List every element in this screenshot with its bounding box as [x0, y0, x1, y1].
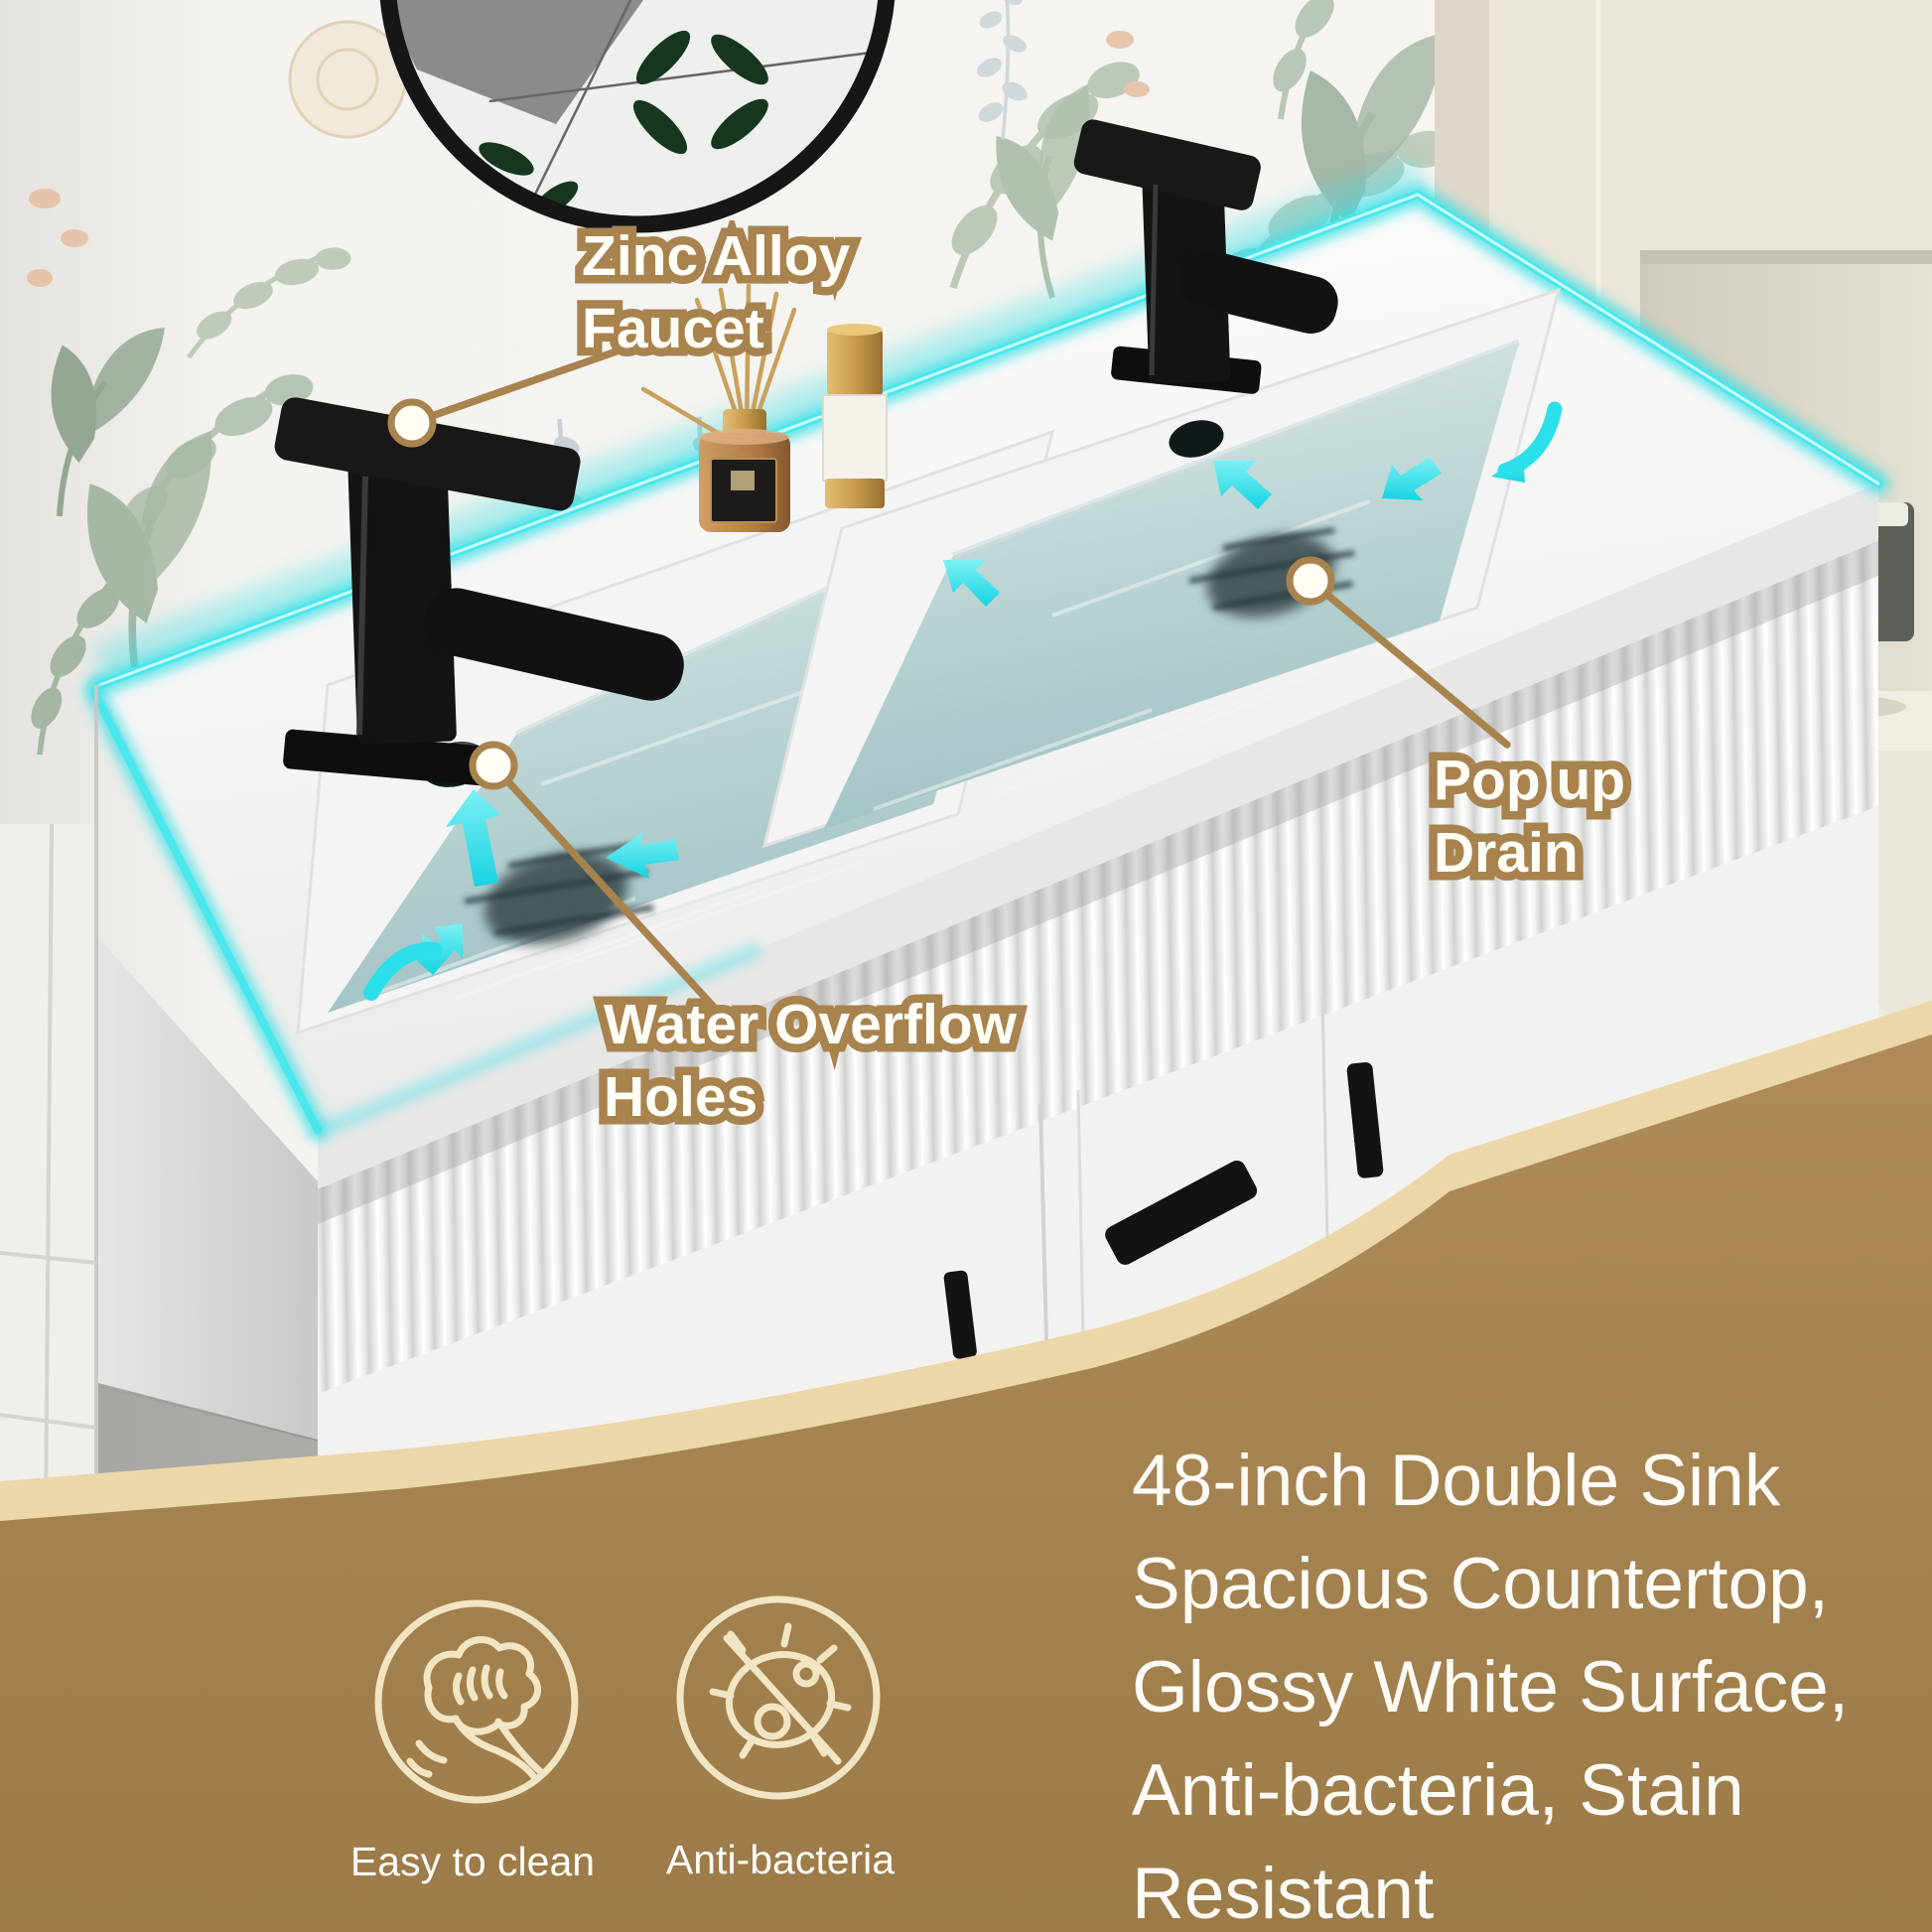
anti-bacteria-icon — [669, 1588, 888, 1807]
drain-callout-dot — [1290, 560, 1331, 602]
description-line: Resistant — [1132, 1843, 1926, 1932]
product-infographic: Zinc AlloyZinc Alloy FaucetFaucet Pop up… — [0, 0, 1932, 1932]
description-line: Glossy White Surface, — [1132, 1636, 1926, 1739]
callout-water-overflow-holes: Water OverflowWater Overflow HolesHoles — [604, 989, 1017, 1134]
description-line: Spacious Countertop, — [1132, 1533, 1926, 1636]
callout-text: Zinc Alloy — [582, 224, 850, 288]
description-line: Anti-bacteria, Stain — [1132, 1739, 1926, 1843]
faucet-callout-dot — [391, 402, 433, 444]
wipe-hand-icon — [367, 1592, 586, 1811]
callout-pop-up-drain: Pop upPop up DrainDrain — [1434, 745, 1625, 890]
bottle-label — [823, 395, 887, 481]
feature-label-anti-bacteria: Anti-bacteria — [621, 1837, 939, 1882]
feature-label-easy-to-clean: Easy to clean — [314, 1839, 631, 1884]
description-line: 48-inch Double Sink — [1132, 1430, 1926, 1533]
product-description: 48-inch Double Sink Spacious Countertop,… — [1132, 1430, 1926, 1932]
callout-zinc-alloy-faucet: Zinc AlloyZinc Alloy FaucetFaucet — [582, 220, 850, 365]
overflow-callout-dot — [473, 745, 514, 786]
